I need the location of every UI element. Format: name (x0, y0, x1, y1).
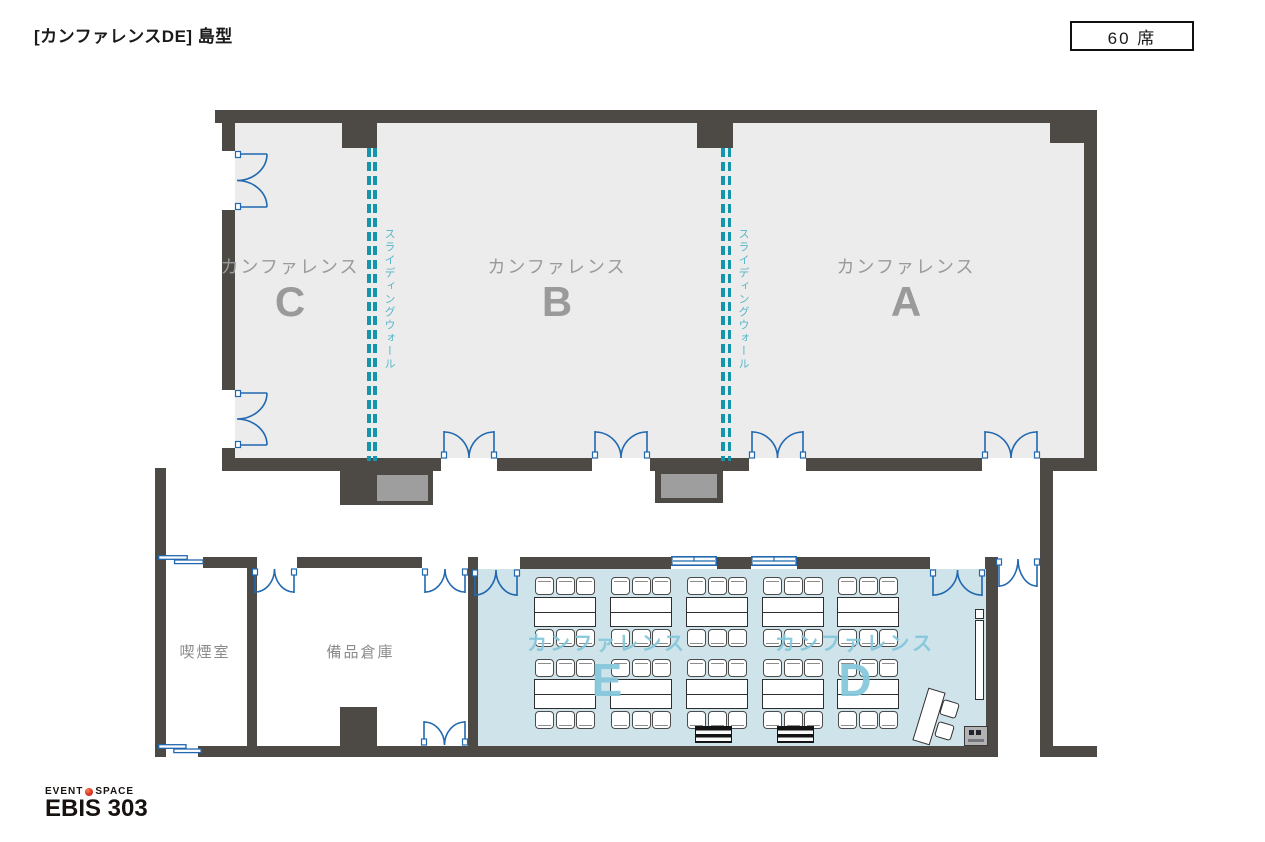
chair (535, 711, 554, 729)
double-door (996, 558, 1040, 588)
chair (652, 711, 671, 729)
room-name-d: カンファレンス (745, 634, 965, 655)
island-table (762, 597, 824, 627)
room-letter-a: A (806, 279, 1006, 325)
room-letter-c: C (190, 279, 390, 325)
sliding-wall (721, 148, 725, 461)
sliding-wall-label-1: スライディングウォール (381, 228, 397, 371)
wall (155, 468, 166, 757)
room-letter-e: E (497, 656, 717, 704)
sliding-door (158, 744, 202, 754)
venue-logo: EVENTSPACE EBIS 303 (45, 786, 148, 821)
room-letter-b: B (457, 279, 657, 325)
wall (222, 110, 235, 151)
room-label-c: カンファレンス C (190, 258, 390, 325)
room-name-a: カンファレンス (806, 258, 1006, 278)
whiteboard-cap (975, 609, 984, 619)
double-door (592, 430, 650, 459)
wall (1053, 746, 1097, 757)
room-name-e: カンファレンス (497, 634, 717, 655)
chair (728, 577, 747, 595)
chair (611, 711, 630, 729)
steps (695, 726, 732, 743)
room-label-smoking: 喫煙室 (165, 641, 245, 662)
wall (342, 110, 377, 148)
double-door (421, 720, 468, 746)
chair (556, 711, 575, 729)
island-table (686, 597, 748, 627)
av-equipment-box (964, 726, 988, 746)
wall (717, 557, 751, 569)
service-window (751, 556, 797, 566)
floor-plan-page: [カンファレンスDE] 島型 60 席 カンファレンス C カンファレンス B … (0, 0, 1265, 842)
double-door (252, 568, 297, 594)
chair (838, 711, 857, 729)
wall (222, 458, 441, 471)
chair (611, 577, 630, 595)
room-label-storage: 備品倉庫 (313, 641, 408, 662)
chair (763, 577, 782, 595)
sliding-door (158, 555, 204, 565)
double-door (472, 569, 520, 597)
wall-niche (661, 474, 717, 498)
island-table (534, 597, 596, 627)
chair (576, 711, 595, 729)
wall (797, 557, 930, 569)
chair (859, 577, 878, 595)
wall (497, 458, 592, 471)
double-door (930, 569, 985, 597)
wall (1050, 110, 1084, 143)
chair (556, 577, 575, 595)
room-name-c: カンファレンス (190, 258, 390, 278)
chair (859, 711, 878, 729)
chair (632, 577, 651, 595)
sliding-wall (728, 148, 732, 461)
chair (838, 577, 857, 595)
wall (340, 707, 377, 746)
room-name-b: カンファレンス (457, 258, 657, 278)
wall (806, 458, 982, 471)
wall (1040, 471, 1053, 757)
whiteboard (975, 620, 984, 700)
wall (1040, 458, 1097, 471)
double-door (235, 151, 269, 210)
chair (784, 577, 803, 595)
island-table (837, 597, 899, 627)
steps (777, 726, 814, 743)
room-letter-d: D (745, 656, 965, 704)
double-door (982, 430, 1040, 459)
floor-plan (0, 0, 1265, 842)
wall (697, 110, 733, 148)
logo-main-text: EBIS 303 (45, 797, 148, 821)
double-door (441, 430, 497, 459)
sliding-wall-label-2: スライディングウォール (735, 228, 751, 371)
chair (708, 577, 727, 595)
room-label-a: カンファレンス A (806, 258, 1006, 325)
chair (535, 577, 554, 595)
double-door (749, 430, 806, 459)
double-door (235, 390, 269, 448)
wall (203, 557, 250, 568)
chair (687, 577, 706, 595)
wall (198, 746, 998, 757)
island-table (610, 597, 672, 627)
chair (632, 711, 651, 729)
chair (652, 577, 671, 595)
double-door (422, 568, 468, 594)
room-label-d: カンファレンス D (745, 634, 965, 704)
chair (879, 577, 898, 595)
chair (804, 577, 823, 595)
chair (576, 577, 595, 595)
wall (650, 458, 749, 471)
room-label-e: カンファレンス E (497, 634, 717, 704)
wall-niche (377, 475, 428, 501)
service-window (671, 556, 717, 566)
room-label-b: カンファレンス B (457, 258, 657, 325)
chair (879, 711, 898, 729)
wall (1084, 110, 1097, 470)
wall (297, 557, 422, 568)
wall (520, 557, 671, 569)
